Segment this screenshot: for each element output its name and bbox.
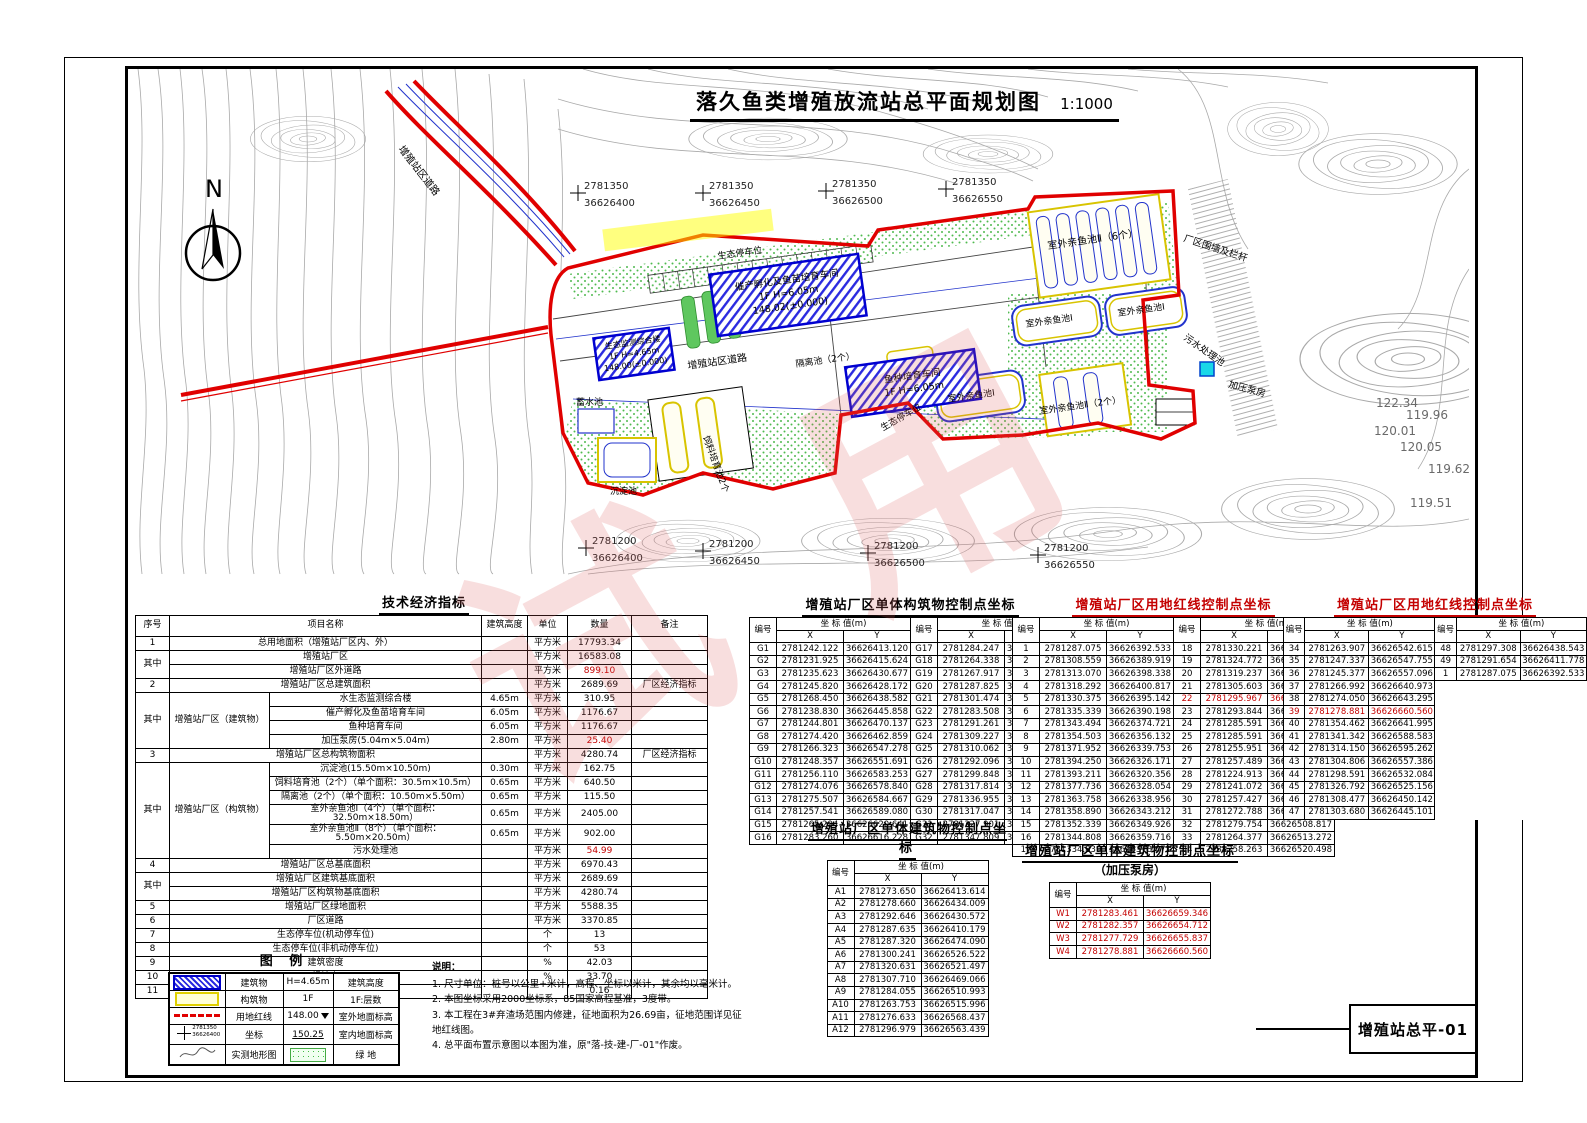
table-cell: 2781301.474 (938, 693, 1005, 706)
note-item: 3. 本工程在3#弃渣场范围内修建，征地面积为26.69亩，征地范围详见征地红线… (432, 1008, 742, 1038)
table-cell: 加压泵房(5.04m×5.04m) (270, 735, 482, 749)
table-cell: G16 (750, 832, 777, 845)
table-cell: 2781291.654 (1456, 655, 1520, 668)
table-cell: G5 (750, 693, 777, 706)
table-cell: 162.75 (568, 763, 632, 777)
table-cell: A10 (827, 999, 854, 1012)
table-cell: A6 (827, 949, 854, 962)
table-cell: 5 (1013, 693, 1040, 706)
coord-row: W12781283.46136626659.346 (1050, 908, 1211, 921)
table-cell: 36626320.356 (1107, 769, 1174, 782)
coord-row: A22781278.66036626434.009 (827, 898, 988, 911)
svg-text:2781350: 2781350 (952, 177, 997, 188)
tech-row: 其中增殖站厂区（构筑物）沉淀池(15.50m×10.50m)0.30m平方米16… (136, 763, 708, 777)
table-cell (632, 872, 708, 886)
table-cell: 902.00 (568, 824, 632, 844)
coord-row: A32781292.64636626430.572 (827, 911, 988, 924)
table-cell: 22 (1174, 693, 1201, 706)
table-cell (1435, 706, 1456, 719)
table-cell: 2781244.801 (777, 718, 844, 731)
table-cell: A5 (827, 936, 854, 949)
table-cell (482, 679, 528, 693)
plan-title: 落久鱼类增殖放流站总平面规划图 1:1000 (690, 86, 1119, 122)
table-cell: G24 (911, 731, 938, 744)
table-cell (632, 824, 708, 844)
table-cell (632, 844, 708, 858)
table-cell (632, 651, 708, 665)
table-cell: 17793.34 (568, 637, 632, 651)
coord-row: 362781245.37736626557.09612781287.075366… (1284, 668, 1587, 681)
table-cell: G7 (750, 718, 777, 731)
table-cell: 2781354.503 (1040, 731, 1107, 744)
table-cell: 27 (1174, 756, 1201, 769)
legend-row: 实测地形图 绿 地 (169, 1045, 399, 1066)
coord-table-redline2: 编号 坐 标 值(m) 编号 坐 标 值(m) X Y X Y 34278126… (1283, 617, 1587, 820)
table-cell: 6.05m (482, 721, 528, 735)
table-cell (632, 763, 708, 777)
table-cell: 平方米 (528, 777, 568, 791)
tech-row: 7生态停车位(机动停车位)个13 (136, 928, 708, 942)
table-cell: 36626356.132 (1107, 731, 1174, 744)
table-cell (1435, 743, 1456, 756)
table-cell (1435, 680, 1456, 693)
table-cell: 43 (1284, 756, 1305, 769)
table-cell: 2781358.890 (1040, 806, 1107, 819)
table-cell (1456, 693, 1520, 706)
table-cell: A4 (827, 923, 854, 936)
table-cell: 2781238.830 (777, 706, 844, 719)
table-cell: 36626508.817 (1268, 819, 1335, 832)
table-cell (1520, 756, 1586, 769)
table-cell: G2 (750, 655, 777, 668)
table-cell: 4280.74 (568, 886, 632, 900)
table-cell: 2689.69 (568, 872, 632, 886)
table-cell (632, 637, 708, 651)
table-cell: 310.95 (568, 693, 632, 707)
reservoir-pond (578, 409, 614, 433)
table-cell: 增殖站厂区（建筑物） (170, 693, 270, 749)
table-cell: G17 (911, 643, 938, 656)
legend-block: 图 例 建筑物 H=4.65m 建筑高度 构筑物 1F 1F:层数 用地红线 1… (168, 950, 400, 1066)
coord-row: W42781278.88136626660.560 (1050, 945, 1211, 958)
table-cell (1456, 743, 1520, 756)
table-cell: 平方米 (528, 651, 568, 665)
table-cell: 2781263.907 (1305, 643, 1369, 656)
table-cell: 其中 (136, 872, 170, 900)
table-cell: 平方米 (528, 735, 568, 749)
table-cell: 平方米 (528, 637, 568, 651)
note-item: 1. 尺寸单位：桩号以公里+米计，高程、坐标以米计，其余均以毫米计。 (432, 977, 742, 992)
table-cell (632, 928, 708, 942)
coord-row: W32781277.72936626655.837 (1050, 933, 1211, 946)
table-cell: 4.65m (482, 693, 528, 707)
table-cell: 2781248.357 (777, 756, 844, 769)
table-cell: 生态停车位(机动停车位) (170, 928, 482, 942)
table-cell: 2781263.753 (854, 999, 921, 1012)
svg-text:119.51: 119.51 (1410, 496, 1452, 510)
note-item: 4. 总平面布置示意图以本图为准，原"落-技-建-厂-01"作废。 (432, 1038, 742, 1053)
table-cell: 36626430.677 (844, 668, 911, 681)
table-cell: 10 (136, 970, 170, 984)
table-cell: 30 (1174, 794, 1201, 807)
legend-symbol: H=4.65m (283, 973, 333, 991)
table-cell: 36626469.066 (921, 974, 988, 987)
table-cell: 5588.35 (568, 900, 632, 914)
legend-label: 建筑物 (225, 973, 283, 991)
table-cell: 8 (1013, 731, 1040, 744)
feed-ponds (648, 387, 753, 481)
table-cell (482, 637, 528, 651)
table-cell: 2781343.494 (1040, 718, 1107, 731)
coord-row: 392781278.88136626660.560 (1284, 706, 1587, 719)
coord-table-pumphouse-title: 增殖站厂区单体建筑物控制点坐标 (1010, 840, 1250, 859)
tech-table-header-row: 序号 项目名称 建筑高度 单位 数量 备注 (136, 616, 708, 637)
outdoor-elevation-symbol: 148.00 (287, 1011, 329, 1021)
table-cell: 2781245.820 (777, 680, 844, 693)
table-cell: 29 (1174, 781, 1201, 794)
table-cell (1520, 781, 1586, 794)
coord-row: 352781247.33736626547.755492781291.65436… (1284, 655, 1587, 668)
table-cell: 15 (1013, 819, 1040, 832)
legend-row: 278135036626400 坐标 150.25 室内地面标高 (169, 1025, 399, 1045)
table-cell: 24 (1174, 718, 1201, 731)
table-cell: 0.65m (482, 791, 528, 805)
tech-row: 5增殖站厂区绿地面积平方米5588.35 (136, 900, 708, 914)
table-cell: 40 (1284, 718, 1305, 731)
legend-label: 室内地面标高 (333, 1025, 399, 1045)
table-cell: 5 (136, 900, 170, 914)
table-cell: 23 (1174, 706, 1201, 719)
svg-text:2781200: 2781200 (709, 539, 754, 550)
drawing-sheet: 278135036626400 278135036626450 27813503… (0, 0, 1587, 1123)
table-cell: G13 (750, 794, 777, 807)
table-cell: 4 (1013, 680, 1040, 693)
table-cell: 0.65m (482, 824, 528, 844)
table-cell (632, 942, 708, 956)
table-cell: A2 (827, 898, 854, 911)
table-cell: 增殖站厂区 (170, 651, 482, 665)
table-cell: 36626532.084 (1369, 769, 1435, 782)
table-cell: 2781305.603 (1201, 680, 1268, 693)
table-cell: 9 (1013, 743, 1040, 756)
coord-row: 442781298.59136626532.084 (1284, 769, 1587, 782)
table-cell: 36626557.386 (1369, 756, 1435, 769)
svg-text:2781350: 2781350 (709, 181, 754, 192)
table-cell: 1 (1435, 668, 1456, 681)
table-cell: 2781268.450 (777, 693, 844, 706)
table-cell: 47 (1284, 806, 1305, 819)
coord-row: 342781263.90736626542.615482781297.30836… (1284, 643, 1587, 656)
table-cell: 46 (1284, 794, 1305, 807)
table-cell: 36626395.142 (1107, 693, 1174, 706)
notes-block: 说明： 1. 尺寸单位：桩号以公里+米计，高程、坐标以米计，其余均以毫米计。 2… (432, 960, 742, 1053)
table-cell: 36626462.859 (844, 731, 911, 744)
table-cell: 2781277.729 (1077, 933, 1144, 946)
table-cell: A12 (827, 1024, 854, 1037)
table-cell: 2781371.952 (1040, 743, 1107, 756)
table-cell: G4 (750, 680, 777, 693)
coord-table-pumphouse-block: 增殖站厂区单体建筑物控制点坐标 （加压泵房） 编号 坐 标 值(m) X Y W… (1010, 840, 1250, 959)
terrain-swatch (177, 1045, 217, 1061)
table-cell: 2781336.955 (938, 794, 1005, 807)
table-cell: 11 (1013, 769, 1040, 782)
table-cell: 36626595.262 (1369, 743, 1435, 756)
table-cell: G6 (750, 706, 777, 719)
col-seq: 序号 (136, 616, 170, 637)
building-swatch (173, 975, 221, 990)
table-cell (1435, 756, 1456, 769)
table-cell: 增殖站厂区外道路 (170, 665, 482, 679)
table-cell: 平方米 (528, 693, 568, 707)
table-cell: 2781298.591 (1305, 769, 1369, 782)
table-cell: 2781283.508 (938, 706, 1005, 719)
table-cell: 2781310.062 (938, 743, 1005, 756)
coord-row: A102781263.75336626515.996 (827, 999, 988, 1012)
table-cell: 2781266.323 (777, 743, 844, 756)
table-cell: 2781257.427 (1201, 794, 1268, 807)
table-cell: 31 (1174, 806, 1201, 819)
coord-row: 412781341.34236626588.583 (1284, 731, 1587, 744)
table-cell: 室外亲鱼池Ⅰ（4个）（单个面积：32.50m×18.50m） (270, 805, 482, 825)
table-cell: 2781247.337 (1305, 655, 1369, 668)
table-cell: 36626521.497 (921, 961, 988, 974)
table-cell: 6970.43 (568, 858, 632, 872)
table-cell: G18 (911, 655, 938, 668)
table-cell: 36626434.009 (921, 898, 988, 911)
table-cell: G11 (750, 769, 777, 782)
table-cell: 6 (136, 914, 170, 928)
svg-text:蓄水池: 蓄水池 (576, 396, 603, 408)
coord-row: 402781354.46236626641.995 (1284, 718, 1587, 731)
table-cell: 2781283.461 (1077, 908, 1144, 921)
table-cell: 2781255.951 (1201, 743, 1268, 756)
table-cell (1435, 693, 1456, 706)
table-cell: 36626568.437 (921, 1012, 988, 1025)
notes-title: 说明： (432, 960, 742, 975)
table-cell (1435, 806, 1456, 819)
table-cell: 20 (1174, 668, 1201, 681)
table-cell: 2781324.772 (1201, 655, 1268, 668)
table-cell: 36626660.560 (1369, 706, 1435, 719)
svg-text:36626500: 36626500 (832, 196, 883, 207)
table-cell: 32 (1174, 819, 1201, 832)
tech-row: 6厂区道路平方米3370.85 (136, 914, 708, 928)
coord-row: A62781300.24136626526.522 (827, 949, 988, 962)
table-cell: 36 (1284, 668, 1305, 681)
table-cell: 36626578.840 (844, 781, 911, 794)
col-id: 编号 (911, 618, 938, 643)
table-cell: G15 (750, 819, 777, 832)
table-cell: 36626430.572 (921, 911, 988, 924)
svg-text:2781350: 2781350 (832, 179, 877, 190)
table-cell: A9 (827, 986, 854, 999)
table-cell (1435, 718, 1456, 731)
table-cell: 38 (1284, 693, 1305, 706)
table-cell (1456, 718, 1520, 731)
table-cell: 12 (1013, 781, 1040, 794)
table-cell: 36626392.533 (1107, 643, 1174, 656)
table-cell (482, 858, 528, 872)
table-cell: 48 (1435, 643, 1456, 656)
table-cell: 2781326.792 (1305, 781, 1369, 794)
table-cell: 25.40 (568, 735, 632, 749)
table-cell: 6 (1013, 706, 1040, 719)
table-cell: 平方米 (528, 858, 568, 872)
drawing-number: 增殖站总平-01 (1358, 1019, 1468, 1040)
tech-row: 增殖站厂区外道路平方米899.10 (136, 665, 708, 679)
table-cell: 36626660.560 (1144, 945, 1211, 958)
table-cell: 3 (1013, 668, 1040, 681)
table-cell: 0.65m (482, 805, 528, 825)
table-cell: 36626410.179 (921, 923, 988, 936)
table-cell (1520, 693, 1586, 706)
table-cell (1520, 706, 1586, 719)
table-cell: 2781335.339 (1040, 706, 1107, 719)
table-cell: 平方米 (528, 721, 568, 735)
tech-row: 其中增殖站厂区建筑基底面积平方米2689.69 (136, 872, 708, 886)
table-cell: 36626445.101 (1369, 806, 1435, 819)
table-cell (632, 693, 708, 707)
tech-row: 其中增殖站厂区平方米16583.08 (136, 651, 708, 665)
table-cell: 36626450.142 (1369, 794, 1435, 807)
table-cell: 增殖站厂区总建筑面积 (170, 679, 482, 693)
north-arrow: N (186, 175, 240, 280)
table-cell: 1176.67 (568, 707, 632, 721)
table-cell: 平方米 (528, 791, 568, 805)
coord-row: W22781282.35736626654.712 (1050, 920, 1211, 933)
table-cell: 1 (136, 637, 170, 651)
table-cell: 平方米 (528, 665, 568, 679)
table-cell: 26 (1174, 743, 1201, 756)
table-cell: 36626547.755 (1369, 655, 1435, 668)
table-cell: 36626659.346 (1144, 908, 1211, 921)
table-cell: 平方米 (528, 886, 568, 900)
table-cell: 36626643.295 (1369, 693, 1435, 706)
table-cell: 增殖站厂区总构筑物面积 (170, 749, 482, 763)
table-cell: 2781295.967 (1201, 693, 1268, 706)
table-cell: 8 (136, 942, 170, 956)
tech-row: 增殖站厂区构筑物基底面积平方米4280.74 (136, 886, 708, 900)
table-cell: 37 (1284, 680, 1305, 693)
table-cell: 7 (136, 928, 170, 942)
table-cell (1520, 718, 1586, 731)
tech-row: 2增殖站厂区总建筑面积平方米2689.69厂区经济指标 (136, 679, 708, 693)
table-cell (482, 844, 528, 858)
legend-label: 用地红线 (225, 1008, 283, 1025)
coord-table-pumphouse: 编号 坐 标 值(m) X Y W12781283.46136626659.34… (1049, 882, 1211, 959)
table-cell: 9 (136, 956, 170, 970)
table-cell (1435, 769, 1456, 782)
table-cell: 2 (136, 679, 170, 693)
table-cell: 2781279.754 (1201, 819, 1268, 832)
table-cell: 平方米 (528, 805, 568, 825)
table-cell (632, 914, 708, 928)
table-cell: 2781292.096 (938, 756, 1005, 769)
table-cell: 2781318.292 (1040, 680, 1107, 693)
svg-text:119.96: 119.96 (1406, 408, 1448, 422)
table-cell: 899.10 (568, 665, 632, 679)
coordinate-cross-symbol: 278135036626400 (177, 1025, 217, 1041)
table-cell: 饲料培育池（2个）（单个面积：30.5m×10.5m） (270, 777, 482, 791)
table-cell: 19 (1174, 655, 1201, 668)
table-cell: 2781231.925 (777, 655, 844, 668)
table-cell: 增殖站厂区建筑基底面积 (170, 872, 482, 886)
table-cell: 36626542.615 (1369, 643, 1435, 656)
table-cell: 14 (1013, 806, 1040, 819)
table-cell: 2781287.635 (854, 923, 921, 936)
table-cell: 2781291.261 (938, 718, 1005, 731)
coord-row: 462781308.47736626450.142 (1284, 794, 1587, 807)
table-cell: 36626415.624 (844, 655, 911, 668)
table-cell: 36626470.137 (844, 718, 911, 731)
coord-table-redline2-title: 增殖站厂区用地红线控制点坐标 (1283, 594, 1587, 613)
table-cell: 4 (136, 858, 170, 872)
table-cell: 11 (136, 984, 170, 998)
note-item: 2. 本图坐标采用2000坐标系，85国家高程基准，3度带。 (432, 992, 742, 1007)
table-cell: 催产孵化及鱼苗培育车间 (270, 707, 482, 721)
table-cell: 2781393.211 (1040, 769, 1107, 782)
table-cell (1456, 806, 1520, 819)
col-coord: 坐 标 值(m) (777, 618, 911, 631)
coord-row: A12781273.65036626413.614 (827, 886, 988, 899)
table-cell (1456, 794, 1520, 807)
table-cell: G9 (750, 743, 777, 756)
table-cell: W1 (1050, 908, 1077, 921)
table-cell: 13 (568, 928, 632, 942)
table-cell: 45 (1284, 781, 1305, 794)
table-cell: 2781341.342 (1305, 731, 1369, 744)
legend-table: 建筑物 H=4.65m 建筑高度 构筑物 1F 1F:层数 用地红线 148.0… (168, 972, 400, 1066)
coord-row: 452781326.79236626525.156 (1284, 781, 1587, 794)
table-cell: 增殖站厂区（构筑物） (170, 763, 270, 859)
coord-row: A112781276.63336626568.437 (827, 1012, 988, 1025)
table-cell: 2781257.489 (1201, 756, 1268, 769)
table-cell: 39 (1284, 706, 1305, 719)
table-cell: 2781377.736 (1040, 781, 1107, 794)
table-cell: 2781264.338 (938, 655, 1005, 668)
table-cell: G27 (911, 769, 938, 782)
table-cell: 2781285.591 (1201, 718, 1268, 731)
table-cell: 2781354.462 (1305, 718, 1369, 731)
table-cell: 厂区经济指标 (632, 749, 708, 763)
table-cell: 36626655.837 (1144, 933, 1211, 946)
tech-table-title: 技术经济指标 (135, 592, 713, 611)
table-cell: 2781274.420 (777, 731, 844, 744)
coord-table-pumphouse-subtitle: （加压泵房） (1010, 861, 1250, 878)
table-cell: 2781267.917 (938, 668, 1005, 681)
table-cell: 2781245.377 (1305, 668, 1369, 681)
table-cell: 54.99 (568, 844, 632, 858)
table-cell: 2781308.559 (1040, 655, 1107, 668)
table-cell: G19 (911, 668, 938, 681)
table-cell (1520, 680, 1586, 693)
coord-row: 422781314.15036626595.262 (1284, 743, 1587, 756)
table-cell (482, 942, 528, 956)
table-cell: A8 (827, 974, 854, 987)
table-cell: 平方米 (528, 749, 568, 763)
table-cell: 36626338.956 (1107, 794, 1174, 807)
coord-table-buildings-title: 增殖站厂区单体建筑物控制点坐标 (800, 818, 1015, 856)
table-cell (482, 749, 528, 763)
coord-row: 382781274.05036626643.295 (1284, 693, 1587, 706)
coord-row: 152781352.33936626349.926322781279.75436… (1013, 819, 1335, 832)
table-cell: 36626390.198 (1107, 706, 1174, 719)
table-cell: 2781242.122 (777, 643, 844, 656)
table-cell: 2781284.247 (938, 643, 1005, 656)
coord-row: A72781320.63136626521.497 (827, 961, 988, 974)
tech-indicator-block: 技术经济指标 序号 项目名称 建筑高度 单位 数量 备注 1总用地面积（增殖站厂… (135, 592, 713, 999)
table-cell: 鱼种培育车间 (270, 721, 482, 735)
